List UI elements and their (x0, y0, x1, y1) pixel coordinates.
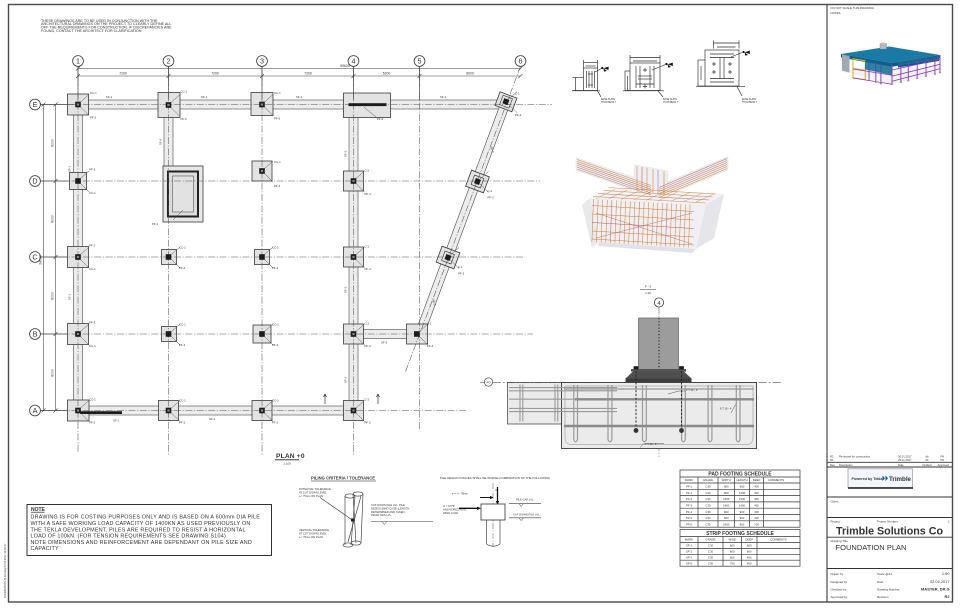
svg-text:PF-1: PF-1 (686, 491, 693, 495)
svg-text:600: 600 (730, 544, 735, 548)
svg-text:5: 5 (418, 57, 422, 66)
svg-text:DRAWING IS FOR COSTING PURPOSE: DRAWING IS FOR COSTING PURPOSES ONLY AND… (31, 515, 261, 521)
svg-text:PLAN +0: PLAN +0 (276, 453, 305, 460)
svg-text:PF-2: PF-2 (89, 421, 96, 425)
svg-text:R2: R2 (945, 594, 951, 599)
svg-text:D: D (32, 177, 37, 186)
svg-text:R2: R2 (830, 454, 834, 458)
svg-text:GRADE: GRADE (706, 538, 716, 542)
svg-text:WIDTH: WIDTH (722, 478, 731, 482)
svg-text:POTENTIAL TOLERANCE: POTENTIAL TOLERANCE (299, 487, 331, 491)
svg-text:450: 450 (747, 555, 752, 559)
svg-text:5200: 5200 (383, 72, 391, 76)
svg-text:PF-2: PF-2 (365, 421, 372, 425)
svg-text:PF-6: PF-6 (274, 117, 281, 121)
svg-text:Trimble: Trimble (889, 476, 911, 483)
svg-text:THICKNESS T: THICKNESS T (663, 102, 679, 104)
svg-text:2: 2 (167, 57, 171, 66)
svg-text:SF-1: SF-1 (68, 293, 72, 300)
svg-text:C-2: C-2 (365, 169, 370, 173)
svg-text:MARK: MARK (685, 538, 693, 542)
svg-text:Drawing Number: Drawing Number (877, 588, 900, 592)
svg-text:1400: 1400 (739, 497, 746, 501)
svg-text:SF-6: SF-6 (686, 561, 693, 565)
svg-text:PF-6: PF-6 (686, 522, 693, 526)
svg-text:CUT DOWN PILE LVL. PILE: CUT DOWN PILE LVL. PILE (371, 503, 405, 507)
svg-text:PF-2: PF-2 (179, 421, 186, 425)
svg-text:600: 600 (730, 550, 735, 554)
svg-text:LENGTH: LENGTH (736, 478, 747, 482)
svg-text:DO NOT SCALE THIS DRAWING: DO NOT SCALE THIS DRAWING (831, 6, 875, 10)
svg-text:E: E (33, 100, 38, 109)
svg-text:WIND LOAD: WIND LOAD (443, 511, 458, 515)
svg-text:600: 600 (730, 555, 735, 559)
svg-text:FOUND, CONTACT THE ARCHITECT F: FOUND, CONTACT THE ARCHITECT FOR CLARIFI… (41, 29, 142, 33)
svg-text:7200: 7200 (304, 72, 312, 76)
svg-text:PF-4: PF-4 (686, 510, 693, 514)
svg-text:STRIP FOOTING SCHEDULE: STRIP FOOTING SCHEDULE (706, 531, 774, 537)
svg-text:400: 400 (754, 485, 759, 489)
svg-text:PF-2: PF-2 (427, 344, 434, 348)
svg-text:PF-2: PF-2 (90, 116, 97, 120)
svg-text:PF-4: PF-4 (179, 343, 186, 347)
svg-text:Designed by: Designed by (831, 580, 848, 584)
svg-text:Date: Date (877, 580, 884, 584)
svg-text:COMMENTS: COMMENTS (768, 478, 784, 482)
svg-text:SF-1: SF-1 (686, 544, 693, 548)
svg-text:SF-2: SF-2 (381, 341, 388, 345)
svg-text:CC-1: CC-1 (272, 399, 279, 403)
svg-text:C-2: C-2 (365, 245, 370, 249)
svg-text:PILING CRITERIA / TOLERANCE: PILING CRITERIA / TOLERANCE (311, 476, 375, 481)
svg-text:59600: 59600 (340, 64, 350, 68)
svg-text:1400: 1400 (723, 497, 730, 501)
svg-text:PF-2: PF-2 (515, 113, 522, 117)
svg-text:MASTER. DR.G: MASTER. DR.G (921, 587, 949, 592)
svg-text:+0: +0 (486, 381, 490, 385)
svg-text:Re-issued for construction: Re-issued for construction (839, 454, 871, 458)
svg-text:SF-1: SF-1 (68, 165, 72, 172)
svg-text:6000: 6000 (51, 292, 55, 300)
svg-text:C30: C30 (705, 504, 711, 508)
svg-text:1:100: 1:100 (283, 462, 291, 466)
svg-text:CC-1: CC-1 (272, 323, 279, 327)
svg-text:R1: R1 (830, 458, 834, 462)
svg-text:e = +/- 75mm: e = +/- 75mm (452, 492, 469, 496)
svg-text:PF-2: PF-2 (488, 196, 495, 200)
svg-text:8000: 8000 (466, 72, 474, 76)
svg-text:1400: 1400 (739, 491, 746, 495)
svg-text:700: 700 (754, 522, 759, 526)
svg-text:C-1: C-1 (427, 322, 432, 326)
svg-text:400: 400 (754, 504, 759, 508)
svg-text:C-1: C-1 (458, 265, 463, 269)
svg-text:2 T 16 - 4: 2 T 16 - 4 (686, 388, 698, 392)
svg-text:SF-6: SF-6 (159, 138, 163, 145)
svg-text:CC-1: CC-1 (272, 246, 279, 250)
svg-text:PF-3: PF-3 (89, 168, 96, 172)
svg-text:CC-1: CC-1 (179, 399, 186, 403)
svg-text:900: 900 (740, 516, 745, 520)
svg-text:CC-1: CC-1 (90, 91, 97, 95)
svg-text:CC-1: CC-1 (179, 323, 186, 327)
svg-text:PF-2: PF-2 (686, 497, 693, 501)
svg-text:MARK: MARK (685, 478, 693, 482)
svg-text:Drafted: Drafted (923, 463, 932, 467)
svg-text:400: 400 (754, 510, 759, 514)
svg-text:Checked by: Checked by (831, 588, 847, 592)
svg-text:1400: 1400 (723, 504, 730, 508)
svg-text:Powered by Tekla: Powered by Tekla (852, 477, 884, 481)
svg-text:CC-1: CC-1 (274, 160, 281, 164)
svg-text:CC-1: CC-1 (179, 246, 186, 250)
svg-text:CC-1: CC-1 (274, 91, 281, 95)
svg-text:THICKNESS T: THICKNESS T (742, 102, 758, 104)
svg-text:P - 6: P - 6 (645, 285, 652, 289)
svg-text:AT CUT DOWN LEVEL: AT CUT DOWN LEVEL (299, 531, 327, 535)
svg-text:Approved by: Approved by (831, 595, 848, 599)
svg-text:WIDE: WIDE (729, 538, 736, 542)
svg-text:PF-3: PF-3 (89, 244, 96, 248)
svg-text:900: 900 (724, 491, 729, 495)
svg-text:400: 400 (754, 491, 759, 495)
svg-text:C-2: C-2 (365, 398, 370, 402)
svg-text:DEEP: DEEP (745, 538, 753, 542)
svg-text:A: A (33, 406, 38, 415)
svg-text:C-1: C-1 (488, 189, 493, 193)
svg-text:C30: C30 (708, 544, 714, 548)
svg-text:1400: 1400 (739, 504, 746, 508)
svg-text:C30: C30 (705, 485, 711, 489)
svg-text:SF-1: SF-1 (113, 419, 120, 423)
svg-text:4: 4 (352, 57, 356, 66)
svg-text:900: 900 (740, 485, 745, 489)
svg-text:VERTICAL TOLERANCE: VERTICAL TOLERANCE (299, 528, 329, 532)
svg-text:PF-4: PF-4 (179, 266, 186, 270)
svg-text:C30: C30 (705, 497, 711, 501)
svg-text:C30: C30 (705, 491, 711, 495)
svg-text:PF-3: PF-3 (89, 321, 96, 325)
svg-text:6: 6 (519, 57, 523, 66)
svg-text:FOUNDATION PLAN: FOUNDATION PLAN (836, 543, 907, 552)
svg-text:7 T 16 - 6: 7 T 16 - 6 (645, 442, 657, 446)
svg-text:BASE PLATE: BASE PLATE (601, 98, 615, 101)
svg-text:COMMENTS: COMMENTS (770, 538, 786, 542)
svg-text:SF-1: SF-1 (106, 95, 113, 99)
svg-text:29.01.2017: 29.01.2017 (898, 458, 912, 462)
svg-text:600: 600 (747, 544, 752, 548)
svg-text:SF-1: SF-1 (209, 417, 216, 421)
svg-text:C30: C30 (705, 522, 711, 526)
svg-text:600: 600 (747, 550, 752, 554)
svg-text:Revision: Revision (877, 595, 889, 599)
svg-text:7200: 7200 (119, 72, 127, 76)
svg-text:C-2: C-2 (365, 322, 370, 326)
svg-text:CC-1: CC-1 (89, 267, 96, 271)
svg-text:+/- 75mm ON PLAN: +/- 75mm ON PLAN (299, 494, 323, 498)
svg-text:PH: PH (941, 458, 945, 462)
svg-text:PF-3: PF-3 (686, 504, 693, 508)
svg-text:SF-3: SF-3 (686, 555, 693, 559)
svg-text:SF-1: SF-1 (201, 95, 208, 99)
svg-text:7200: 7200 (211, 72, 219, 76)
svg-text:BASE PLATE: BASE PLATE (742, 98, 756, 101)
svg-text:FOUNDATION PLAN.dwg 02.02.201: FOUNDATION PLAN.dwg 02.02.2017 12:02:17 (3, 543, 7, 598)
svg-text:Project: Project (831, 520, 841, 524)
svg-text:CAPACITY: CAPACITY (31, 546, 60, 552)
svg-text:B: B (33, 330, 38, 339)
svg-text:900: 900 (740, 510, 745, 514)
svg-text:PF-4: PF-4 (272, 266, 279, 270)
svg-text:Project Number: Project Number (877, 520, 898, 524)
svg-text:8 T 16 - 4: 8 T 16 - 4 (720, 407, 732, 411)
svg-text:SF-3: SF-3 (344, 150, 348, 157)
svg-text:C30: C30 (708, 550, 714, 554)
svg-text:PH: PH (941, 454, 945, 458)
svg-text:db: db (926, 454, 929, 458)
svg-text:PF-1: PF-1 (152, 222, 159, 226)
svg-text:6000: 6000 (51, 215, 55, 223)
svg-text:PF-6: PF-6 (377, 117, 384, 121)
svg-text:750: 750 (730, 561, 735, 565)
svg-text:PF-2: PF-2 (458, 272, 465, 276)
svg-text:900: 900 (740, 522, 745, 526)
svg-text:900: 900 (724, 516, 729, 520)
svg-text:30.01.2017: 30.01.2017 (898, 454, 912, 458)
svg-text:PAD FOOTING SCHEDULE: PAD FOOTING SCHEDULE (708, 472, 772, 478)
svg-text:PILE CAP LVL.: PILE CAP LVL. (516, 498, 534, 502)
svg-text:400: 400 (754, 516, 759, 520)
svg-text:450: 450 (747, 561, 752, 565)
svg-text:THE TEKLA DEVELOPMENT. PILES A: THE TEKLA DEVELOPMENT. PILES ARE REQUIRE… (31, 527, 246, 533)
svg-text:THICKNESS T: THICKNESS T (601, 102, 617, 104)
svg-text:1:10: 1:10 (645, 291, 651, 295)
svg-text:Date: Date (898, 463, 904, 467)
svg-text:PF-4: PF-4 (365, 267, 372, 271)
svg-text:FROM THIS LVL.: FROM THIS LVL. (371, 513, 392, 517)
svg-text:2400: 2400 (723, 522, 730, 526)
svg-text:CC-1: CC-1 (89, 398, 96, 402)
svg-text:PF-5: PF-5 (686, 516, 693, 520)
svg-text:DETERMINED AND TAKEN: DETERMINED AND TAKEN (371, 510, 405, 514)
svg-text:CC-1: CC-1 (89, 191, 96, 195)
svg-text:Approved: Approved (938, 463, 950, 467)
svg-text:C30: C30 (705, 510, 711, 514)
svg-text:SF-1: SF-1 (296, 95, 303, 99)
svg-text:900: 900 (724, 485, 729, 489)
svg-text:C-1: C-1 (515, 92, 520, 96)
svg-text:CC-1: CC-1 (181, 90, 188, 94)
svg-text:Trimble Solutions Co: Trimble Solutions Co (836, 526, 943, 538)
svg-text:C30: C30 (708, 555, 714, 559)
svg-text:02.02.2017: 02.02.2017 (930, 579, 949, 584)
svg-text:DESIGN BIND CAGE (LENGTH: DESIGN BIND CAGE (LENGTH (371, 506, 409, 510)
svg-text:PF-4: PF-4 (272, 343, 279, 347)
svg-text:NOTES: NOTES (831, 11, 841, 15)
svg-text:SF-2: SF-2 (686, 550, 693, 554)
svg-text:CUT DOWN PILE LVL.: CUT DOWN PILE LVL. (513, 513, 541, 517)
svg-text:NOTE DIMENSIONS AND REINFORCEM: NOTE DIMENSIONS AND REINFORCEMENT ARE DE… (31, 540, 252, 546)
svg-text:Scale @A1: Scale @A1 (877, 572, 892, 576)
svg-text:CC-1: CC-1 (89, 344, 96, 348)
svg-text:SF-3: SF-3 (344, 286, 348, 293)
svg-text:PF-4: PF-4 (274, 184, 281, 188)
svg-text:PILE DESIGN FORCES SHALL BE WO: PILE DESIGN FORCES SHALL BE WORSE COMBIN… (440, 477, 550, 480)
svg-text:+/- 75mm ON PLAN: +/- 75mm ON PLAN (299, 535, 323, 539)
svg-text:db: db (926, 458, 929, 462)
svg-text:C30: C30 (708, 561, 714, 565)
svg-text:GRADE: GRADE (703, 478, 713, 482)
svg-text:SF-3: SF-3 (344, 376, 348, 383)
svg-text:H = 0.5*P: H = 0.5*P (443, 504, 455, 508)
svg-text:BASE PLATE: BASE PLATE (663, 98, 677, 101)
svg-text:Description: Description (839, 463, 853, 467)
svg-text:3: 3 (260, 57, 264, 66)
svg-text:6000: 6000 (51, 139, 55, 147)
svg-text:PF-4: PF-4 (365, 192, 372, 196)
svg-text:PF-2: PF-2 (365, 344, 372, 348)
svg-text:C30: C30 (705, 516, 711, 520)
svg-text:PF-1: PF-1 (686, 485, 693, 489)
svg-text:400: 400 (754, 497, 759, 501)
svg-text:PF-6: PF-6 (181, 117, 188, 121)
svg-text:LOAD OF 100kN. (FOR TENSION RE: LOAD OF 100kN. (FOR TENSION REQUIREMENTS… (31, 534, 226, 540)
svg-text:Drawn by: Drawn by (831, 572, 844, 576)
svg-text:SF-1: SF-1 (440, 95, 447, 99)
svg-text:6000: 6000 (51, 369, 55, 377)
svg-text:900: 900 (724, 510, 729, 514)
svg-text:DEEP: DEEP (753, 478, 761, 482)
svg-text:PF-2: PF-2 (272, 421, 279, 425)
svg-text:C: C (32, 253, 37, 262)
svg-text:Client: Client (831, 500, 839, 504)
svg-text:24000: 24000 (39, 255, 43, 265)
svg-text:WITH A SAFE WORKING LOAD CAPAC: WITH A SAFE WORKING LOAD CAPACITY OF 140… (31, 521, 251, 527)
svg-text:Rev.: Rev. (830, 463, 836, 467)
svg-text:AT CUT DOWN LEVEL: AT CUT DOWN LEVEL (299, 490, 327, 494)
svg-text:1:50: 1:50 (942, 571, 950, 576)
svg-text:1: 1 (76, 57, 80, 66)
